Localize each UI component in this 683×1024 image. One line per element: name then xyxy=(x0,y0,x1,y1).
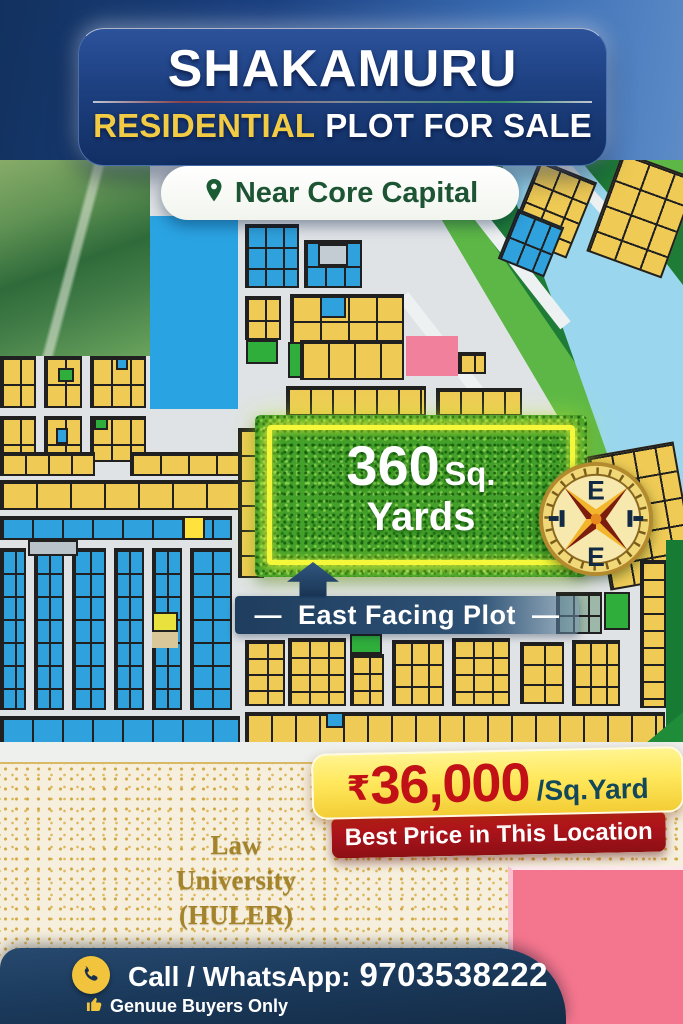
facing-dash: — xyxy=(532,600,560,630)
plot-block xyxy=(44,356,82,408)
plot-gray xyxy=(318,244,348,266)
plot-pink xyxy=(406,336,458,376)
phone-icon xyxy=(72,956,110,994)
location-text: Near Core Capital xyxy=(235,177,478,210)
plot-block xyxy=(300,340,404,380)
plot-green xyxy=(604,592,630,630)
plot-block xyxy=(245,296,281,340)
price-unit: /Sq.Yard xyxy=(536,760,649,820)
plot-block xyxy=(0,452,95,476)
plot-block xyxy=(286,386,426,416)
plot-area-unit-line2: Yards xyxy=(255,496,587,538)
plot-blue xyxy=(116,358,128,370)
plot-block xyxy=(392,640,444,706)
divider xyxy=(93,101,592,103)
plot-block xyxy=(130,452,248,476)
compass-top-label: E xyxy=(587,475,605,505)
plot-block xyxy=(0,716,240,744)
plot-area-value: 360 xyxy=(346,434,439,497)
buyers-note: Genuue Buyers Only xyxy=(110,996,288,1017)
plot-block xyxy=(245,224,299,288)
rupee-symbol: ₹ xyxy=(346,769,371,809)
facing-banner: — East Facing Plot — xyxy=(235,596,579,634)
real-estate-poster: 360 Sq. Yards — East Facing Plot — xyxy=(0,0,683,1024)
plot-block xyxy=(245,712,665,744)
landmark-line: Law xyxy=(118,828,354,863)
plot-area-unit: Sq. xyxy=(444,455,495,492)
thumbs-up-icon xyxy=(86,995,103,1017)
compass-bottom-label: E xyxy=(587,542,605,572)
plot-blue xyxy=(56,428,68,444)
plot-block xyxy=(290,294,404,344)
plot-block xyxy=(114,548,144,710)
plot-block xyxy=(190,548,232,710)
plot-block xyxy=(572,640,620,706)
plot-block xyxy=(640,560,666,708)
plot-blue xyxy=(326,712,344,728)
map-pin-icon xyxy=(202,176,226,211)
lake-block xyxy=(150,216,238,409)
subtitle-highlight: RESIDENTIAL xyxy=(93,107,315,144)
plot-block xyxy=(452,638,510,706)
landmark-line: (HULER) xyxy=(118,898,354,933)
price-amount: 36,000 xyxy=(370,751,530,816)
call-bar: Call / WhatsApp:9703538222 Genuue Buyers… xyxy=(0,948,566,1024)
call-label: Call / WhatsApp: xyxy=(128,961,350,992)
plot-block xyxy=(288,638,346,706)
landmark-label: Law University (HULER) xyxy=(118,828,354,933)
price-section: ₹36,000/Sq.Yard Best Price in This Locat… xyxy=(311,746,683,859)
plot-green xyxy=(288,342,302,378)
plot-block xyxy=(458,352,486,374)
plot-area-text: 360 Sq. Yards xyxy=(255,437,587,538)
title-banner: SHAKAMURU RESIDENTIALPLOT FOR SALE xyxy=(78,28,607,166)
plot-green xyxy=(350,634,382,654)
plot-block xyxy=(0,356,36,408)
plot-tan xyxy=(152,632,178,648)
call-line: Call / WhatsApp:9703538222 xyxy=(128,956,548,994)
phone-number: 9703538222 xyxy=(359,956,548,993)
subtitle: RESIDENTIALPLOT FOR SALE xyxy=(79,107,606,145)
note-line: Genuue Buyers Only xyxy=(86,995,288,1017)
price-banner: ₹36,000/Sq.Yard xyxy=(311,746,683,820)
plot-block xyxy=(0,480,248,510)
plot-green xyxy=(94,418,108,430)
plot-gray xyxy=(28,540,78,556)
plot-block xyxy=(350,654,384,706)
plot-yellow xyxy=(183,516,205,540)
subtitle-rest: PLOT FOR SALE xyxy=(325,107,592,144)
facing-dash: — xyxy=(254,600,282,630)
plot-yellow xyxy=(152,612,178,632)
plot-green xyxy=(246,340,278,364)
landmark-line: University xyxy=(118,863,354,898)
plot-block xyxy=(34,548,64,710)
plot-green xyxy=(58,368,74,382)
page-title: SHAKAMURU xyxy=(79,39,606,99)
plot-block xyxy=(520,642,564,704)
plot-block xyxy=(0,548,26,710)
plot-block xyxy=(436,388,522,416)
plot-block xyxy=(245,640,285,706)
plot-block xyxy=(72,548,106,710)
aerial-photo xyxy=(0,160,150,356)
facing-label: East Facing Plot xyxy=(298,600,516,630)
location-pill: Near Core Capital xyxy=(161,166,519,220)
plot-blue xyxy=(320,296,346,318)
